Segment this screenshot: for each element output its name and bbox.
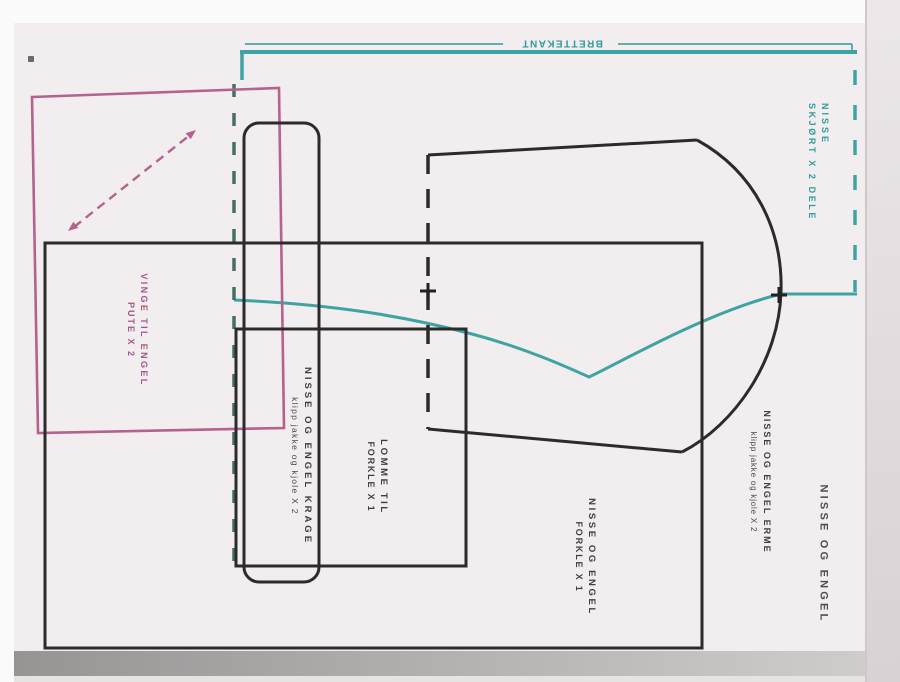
sewing-pattern-sheet: BRETTEKANT NISSE SKJØRT X 2 DELE VINGE T…	[0, 0, 900, 682]
plus-mark-icon	[420, 283, 436, 299]
collar-label-line1: NISSE OG ENGEL KRAGE	[301, 367, 314, 545]
fold-edge-bracket	[240, 44, 857, 292]
wing-label-line1: VINGE TIL ENGEL	[137, 273, 150, 386]
sleeve-piece-label: NISSE OG ENGEL ERME klipp jakke og kjole…	[747, 410, 773, 553]
wing-label-line2: PUTE X 2	[124, 273, 137, 386]
pattern-title-text: NISSE OG ENGEL	[818, 485, 830, 624]
skirt-piece-label: NISSE SKJØRT X 2 DELE	[805, 103, 831, 221]
wing-piece-outline	[32, 88, 284, 433]
sleeve-label-line1: NISSE OG ENGEL ERME	[760, 410, 773, 553]
pocket-label-line1: LOMME TIL	[377, 439, 390, 515]
wing-piece-label: VINGE TIL ENGEL PUTE X 2	[124, 273, 150, 386]
skirt-label-line2: SKJØRT X 2 DELE	[805, 103, 818, 221]
pocket-piece-label: LOMME TIL FORKLE X 1	[364, 439, 390, 515]
plus-mark-icon	[771, 287, 787, 303]
grain-arrow	[68, 130, 196, 231]
scan-speck	[28, 56, 34, 62]
match-plus-marks	[420, 283, 787, 303]
apron-label-line2: FORKLE X 1	[572, 498, 585, 616]
sleeve-piece-outline	[428, 140, 781, 452]
fold-edge-text: BRETTEKANT	[521, 38, 603, 49]
apron-label-line1: NISSE OG ENGEL	[585, 498, 598, 616]
sleeve-label-line2: klipp jakke og kjole X 2	[747, 410, 760, 553]
fold-edge-label: BRETTEKANT	[521, 37, 603, 50]
collar-piece-label: NISSE OG ENGEL KRAGE klipp jakke og kjol…	[288, 367, 314, 545]
skirt-label-line1: NISSE	[818, 103, 831, 221]
pattern-title-label: NISSE OG ENGEL	[817, 485, 830, 624]
collar-label-line2: klipp jakke og kjole X 2	[288, 367, 301, 545]
pocket-piece-outline	[236, 329, 466, 566]
apron-piece-label: NISSE OG ENGEL FORKLE X 1	[572, 498, 598, 616]
pocket-label-line2: FORKLE X 1	[364, 439, 377, 515]
